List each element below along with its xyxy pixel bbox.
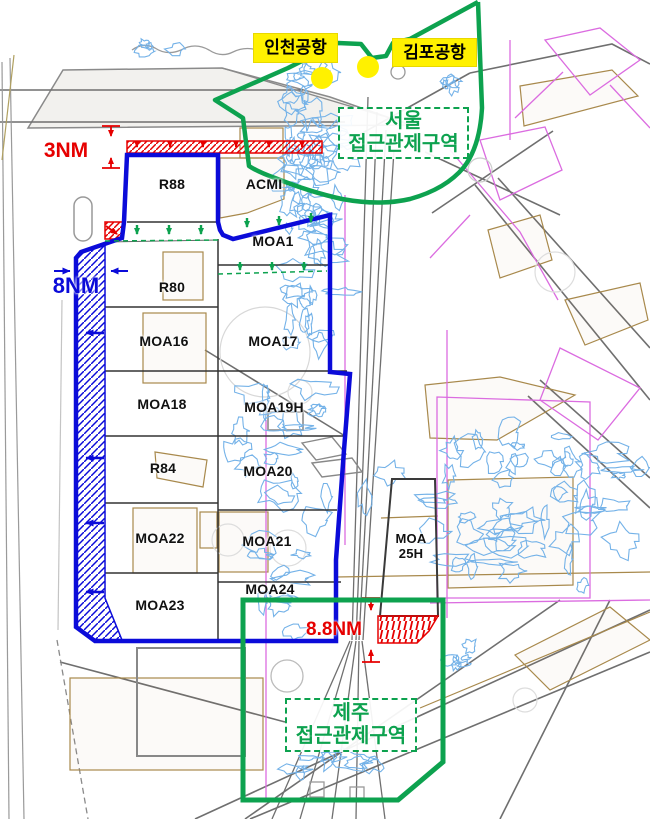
airspace-map: 인천공항 김포공항 서울 접근관제구역 제주 접근관제구역 R88 ACMI M… xyxy=(0,0,650,819)
measurement-3nm: 3NM xyxy=(44,139,88,163)
zone-label-r88: R88 xyxy=(159,176,185,192)
jeju-approach-line1: 제주 xyxy=(287,702,415,725)
zone-label-moa17: MOA17 xyxy=(248,333,297,349)
zone-label-moa24: MOA24 xyxy=(245,581,294,597)
zone-label-moa22: MOA22 xyxy=(135,530,184,546)
3nm-measure-arrows xyxy=(102,126,120,168)
zone-label-moa20: MOA20 xyxy=(243,463,292,479)
blue-8nm-buffer-strip xyxy=(76,243,122,641)
zone-label-moa25h-line2: 25H xyxy=(396,546,427,561)
zone-label-moa21: MOA21 xyxy=(242,533,291,549)
seoul-approach-line1: 서울 xyxy=(340,110,467,133)
zone-label-moa19h: MOA19H xyxy=(244,399,304,415)
red-3nm-buffer-strip xyxy=(127,141,322,153)
zone-label-moa16: MOA16 xyxy=(139,333,188,349)
zone-label-moa25h: MOA 25H xyxy=(396,531,427,561)
jeju-approach-line2: 접근관제구역 xyxy=(287,725,415,748)
measurement-8nm: 8NM xyxy=(53,273,99,299)
zone-label-moa18: MOA18 xyxy=(137,396,186,412)
jeju-approach-label-box: 제주 접근관제구역 xyxy=(285,698,417,752)
red-88nm-buffer xyxy=(378,616,438,643)
seoul-approach-label-box: 서울 접근관제구역 xyxy=(338,107,469,159)
airport-label-incheon: 인천공항 xyxy=(253,33,338,63)
incheon-airport-dot xyxy=(311,67,333,89)
seoul-approach-line2: 접근관제구역 xyxy=(340,133,467,156)
sector-grid xyxy=(105,222,347,641)
measurement-88nm: 8.8NM xyxy=(306,619,362,641)
airport-label-gimpo: 김포공항 xyxy=(392,38,477,67)
zone-label-acmi: ACMI xyxy=(246,176,283,192)
background-tan-shapes xyxy=(70,70,650,770)
zone-label-moa25h-line1: MOA xyxy=(396,531,427,546)
gimpo-airport-dot xyxy=(357,56,379,78)
zone-label-moa23: MOA23 xyxy=(135,597,184,613)
zone-label-r84: R84 xyxy=(150,460,176,476)
zone-label-r80: R80 xyxy=(159,279,185,295)
map-canvas xyxy=(0,0,650,819)
zone-label-moa1: MOA1 xyxy=(252,233,293,249)
